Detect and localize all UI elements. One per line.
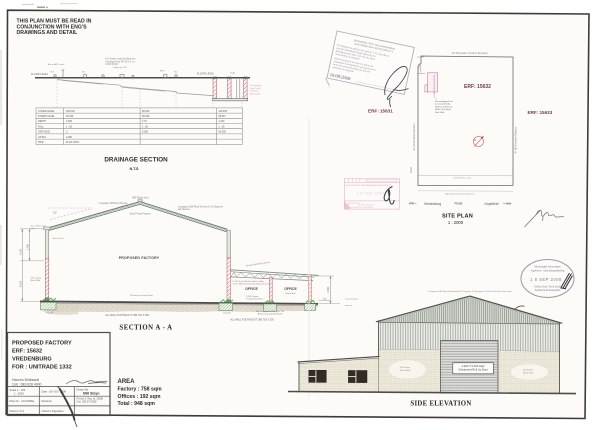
svg-text:99.336: 99.336 [66,115,74,118]
svg-text:100.450: 100.450 [218,110,227,113]
svg-text:FLOOR LEVEL: FLOOR LEVEL [197,73,215,76]
svg-text:Nilli Steyn: Nilli Steyn [83,392,99,396]
svg-text:Steel Purlin: Steel Purlin [53,237,65,240]
svg-text:0.000 0.000: 0.000 0.000 [106,64,119,66]
svg-text:Road: Road [455,202,463,206]
svg-text:Galvanized Roll Up Door: Galvanized Roll Up Door [458,368,488,372]
svg-text:BTH: BTH [160,71,165,73]
svg-text:Old Road So Long: Old Road So Long [453,178,471,180]
svg-text:ERF: 15631: ERF: 15631 [368,109,393,114]
svg-text:150 Cavity: 150 Cavity [31,276,42,279]
svg-text:Top Soil: Top Soil [46,312,54,314]
svg-text:PROPOSED FACTORY: PROPOSED FACTORY [433,75,436,97]
svg-text:PIPE: PIPE [38,141,44,144]
svg-text:Factory : 758 sqm: Factory : 758 sqm [118,386,162,392]
svg-text:ALL WALL FOOTINGS TO BE 700 X: ALL WALL FOOTINGS TO BE 700 X 250 [105,314,149,317]
svg-text:Pipe To Be: Pipe To Be [250,88,261,90]
svg-text:pipes: pipes [31,228,37,230]
svg-text:Revision: Revision [42,399,53,403]
svg-text:B. Verw 2008: B. Verw 2008 [361,207,374,209]
svg-text:DEPTH: DEPTH [38,120,46,123]
svg-text:Saldanha Munisipaliteit: Saldanha Munisipaliteit [535,289,561,292]
svg-text:Ingenieur - Opmetingsafdeling: Ingenieur - Opmetingsafdeling [531,269,565,272]
svg-text:FOR : UNITRADE 1332: FOR : UNITRADE 1332 [12,365,72,371]
svg-text:SECTION A - A: SECTION A - A [119,324,172,331]
svg-text:The Elevated Floor: The Elevated Floor [246,297,263,300]
svg-text:9.000: 9.000 [419,63,421,69]
svg-text:Offices : 192 sqm: Offices : 192 sqm [118,394,161,400]
svg-text:1 6 SEP 2008: 1 6 SEP 2008 [357,191,386,196]
svg-text:UP DIA: UP DIA [38,136,46,139]
svg-text:150 mm Concrete Floor: 150 mm Concrete Floor [130,294,153,297]
svg-text:Vervaardiging Fase: Vervaardiging Fase [435,100,454,103]
svg-text:2.70: 2.70 [142,120,147,123]
svg-text:Brick Wall: Brick Wall [400,369,410,372]
svg-text:Scale 1 : 100: Scale 1 : 100 [10,388,26,392]
svg-text:ALL WALL FOOTINGS TO BE 700 X: ALL WALL FOOTINGS TO BE 700 X 250 [230,319,274,322]
svg-text:6.350: 6.350 [142,131,149,134]
svg-text:Brick Wall: Brick Wall [523,372,533,375]
svg-text:Ontvangs erken: Ontvangs erken [361,204,375,207]
svg-text:Top Soil: Top Soil [223,313,231,315]
svg-text:Gully trap 100: Gully trap 100 [113,66,127,69]
svg-text:Gebied Suid / Area South: Gebied Suid / Area South [534,285,562,288]
svg-text:60.000: 60.000 [218,131,226,134]
svg-text:Air tie ARP stack: Air tie ARP stack [48,63,65,66]
svg-text:VREDENBURG: VREDENBURG [12,357,52,363]
svg-text:Total : 948 sqm: Total : 948 sqm [118,401,156,407]
svg-text:DRAINAGE SECTION: DRAINAGE SECTION [104,157,168,164]
svg-text:MUNISIPALITEIT SALDANHA BAAI M: MUNISIPALITEIT SALDANHA BAAI MUNICIPALIT… [346,184,393,187]
svg-text:100 Series: 100 Series [400,366,411,369]
svg-text:Brick Wall: Brick Wall [31,279,41,282]
svg-text:1 : 60: 1 : 60 [142,125,149,128]
svg-text:Ø 110 uPVC: Ø 110 uPVC [66,141,80,144]
svg-text:98.937: 98.937 [218,115,226,118]
svg-text:3.000: 3.000 [327,286,330,293]
svg-text:Gal. Gutter and: Gal. Gutter and [31,225,47,228]
svg-text:WC: WC [82,72,86,74]
svg-text:99.336: 99.336 [142,110,150,113]
svg-text:Erf Photowatec Tecs/pwr Bounda: Erf Photowatec Tecs/pwr Boundary [452,52,489,55]
svg-text:COVER LEVEL: COVER LEVEL [38,110,55,113]
svg-text:2.050: 2.050 [27,243,30,250]
svg-text:AREA: AREA [118,379,136,385]
svg-text:47 M2 Boundary Distance: 47 M2 Boundary Distance [514,126,517,153]
svg-text:DRAWINGS AND DETAIL: DRAWINGS AND DETAIL [17,30,79,36]
svg-text:SITE PLAN: SITE PLAN [442,214,473,220]
svg-text:Sheet 1 of 3: Sheet 1 of 3 [10,409,25,413]
svg-text:ERF: 15633: ERF: 15633 [528,110,553,115]
svg-text:PROPOSED FACTORY: PROPOSED FACTORY [12,341,72,347]
svg-text:Connecting: Connecting [250,84,262,87]
svg-text:& Lane perfectly: & Lane perfectly [435,103,451,106]
svg-text:Longspan 686 Roof Sheeting At: Longspan 686 Roof Sheeting At 15 Degrees… [429,290,512,293]
svg-text:Drainage Note PP 26.0 b + b: Drainage Note PP 26.0 b + b [106,60,136,63]
svg-text:1 : 60: 1 : 60 [218,125,225,128]
svg-text:100 Series: 100 Series [523,369,534,372]
svg-text:Vredenburg: Vredenburg [424,202,441,206]
svg-text:ERF: 15632: ERF: 15632 [12,349,42,355]
svg-text:Munisipale Informasie: Munisipale Informasie [534,265,561,269]
svg-text:A Few and Legally Utilized: A Few and Legally Utilized [258,312,283,315]
svg-text:Pr.Arch S. Reg. Nr. 20058: Pr.Arch S. Reg. Nr. 20058 [77,398,104,401]
svg-text:Raised floor: Raised floor [285,292,295,295]
svg-text:For Sewer under building see: For Sewer under building see [106,58,137,61]
svg-text:DISTANCE: DISTANCE [38,131,50,134]
svg-text:1 : 60: 1 : 60 [66,125,73,128]
svg-text:IBR Ridge Vent: IBR Ridge Vent [132,196,149,199]
svg-text:1 8 SEP 2008: 1 8 SEP 2008 [530,277,562,282]
svg-text:SIDE ELEVATION: SIDE ELEVATION [410,400,471,407]
svg-text:1 : 2000: 1 : 2000 [448,220,464,225]
svg-text:Longspan 686 Roof Sheets: Longspan 686 Roof Sheets [99,202,129,205]
svg-text:WC: WC [174,72,178,74]
svg-text:Within The Neust: Within The Neust [435,108,451,111]
svg-text:del Spaces: del Spaces [178,208,191,211]
svg-text:Steel Portal Frames: Steel Portal Frames [129,212,151,215]
svg-text:Hopefield: Hopefield [485,202,499,206]
svg-text:Plan Nr : I-AY/2008a: Plan Nr : I-AY/2008a [10,399,35,403]
svg-text:100.000: 100.000 [66,110,75,113]
svg-text:Build to The Neust: Build to The Neust [435,105,452,108]
svg-text:INVERT LEVEL: INVERT LEVEL [38,115,55,118]
svg-text:Hannes Wolfaardt: Hannes Wolfaardt [12,378,39,382]
svg-text:0.000: 0.000 [66,136,73,139]
svg-text:15°: 15° [53,211,57,215]
svg-text:1.100: 1.100 [218,120,225,123]
svg-text:S 150 Truss Plated Cables at M: S 150 Truss Plated Cables at Max [233,280,265,283]
svg-text:8.230: 8.230 [19,280,22,287]
svg-text:Benzoned: Benzoned [250,93,261,95]
svg-text:1 : 2000: 1 : 2000 [14,391,24,395]
svg-text:2.450: 2.450 [66,120,73,123]
svg-text:OFFICE: OFFICE [284,287,297,291]
svg-text:PROPOSED FACTORY: PROPOSED FACTORY [119,256,160,260]
svg-text:FALL: FALL [38,125,44,128]
svg-text:Cell : 082 372 8528: Cell : 082 372 8528 [77,402,98,404]
svg-text:R.E: R.E [51,72,55,74]
svg-text:Was 500b: Was 500b [435,112,445,114]
svg-text:Fixed To: Fixed To [250,91,259,93]
svg-text:4.000 X 5.000 High: 4.000 X 5.000 High [461,364,485,368]
svg-text:N.T.S: N.T.S [130,167,139,171]
svg-text:99.435: 99.435 [142,115,150,118]
svg-text:4 10 x 38.50 Galvanized Sheet: 4 10 x 38.50 Galvanized Sheet 50 mm bolt [233,283,273,286]
svg-text:ERF: 15632: ERF: 15632 [464,84,491,90]
svg-text:Road: Road [411,167,413,173]
svg-text:Owner's Signature: Owner's Signature [42,409,65,413]
svg-text:OFFICE: OFFICE [245,287,258,291]
svg-text:FLOOR LEVEL: FLOOR LEVEL [31,73,49,76]
svg-text:Rift Compacted Filling For The: Rift Compacted Filling For The [256,310,285,313]
svg-text:Cell : 083 628 4000: Cell : 083 628 4000 [12,382,42,386]
svg-text:5.180: 5.180 [19,248,22,255]
svg-text:SA 190 Boundary Distance: SA 190 Boundary Distance [413,123,416,151]
svg-text:NA RN Boundary Road Reserve: NA RN Boundary Road Reserve [445,193,476,196]
